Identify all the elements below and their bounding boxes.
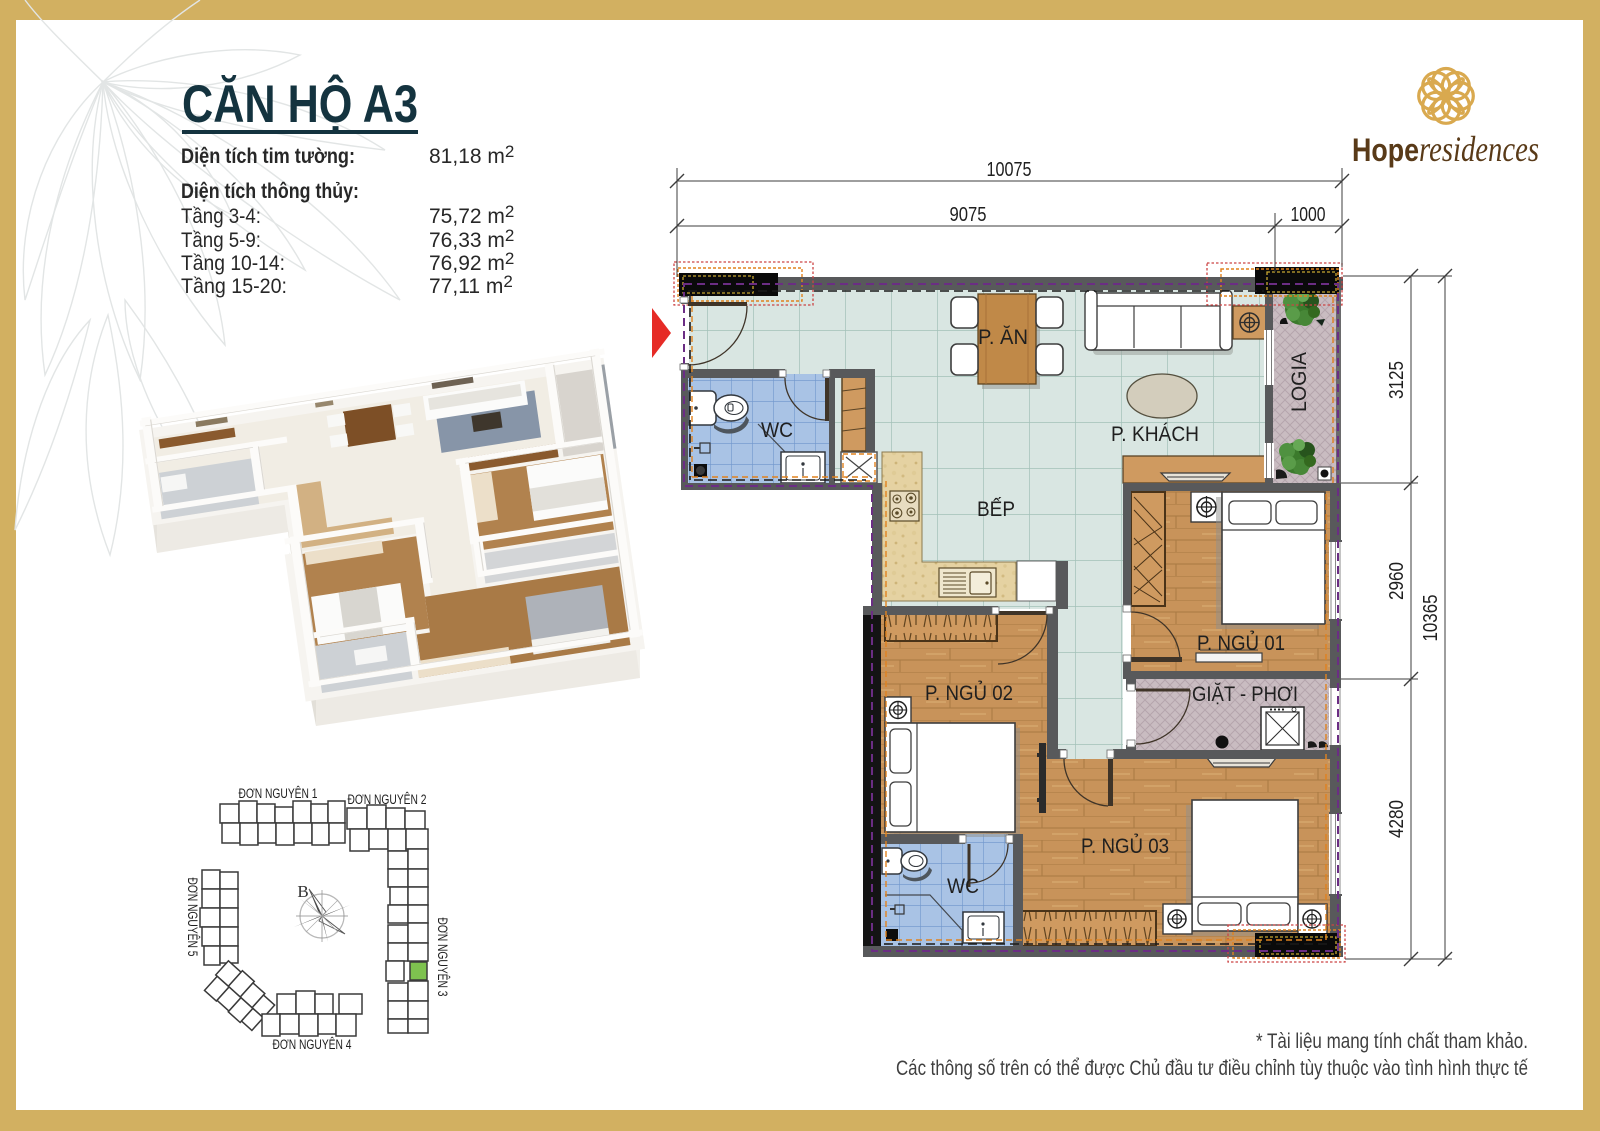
svg-text:76,92 m2: 76,92 m2	[429, 249, 514, 275]
svg-text:Hope: Hope	[1352, 132, 1419, 168]
svg-text:ĐƠN NGUYÊN 4: ĐƠN NGUYÊN 4	[273, 1037, 352, 1052]
svg-text:ĐƠN NGUYÊN 2: ĐƠN NGUYÊN 2	[348, 792, 427, 807]
svg-text:Diện tích tim tường:: Diện tích tim tường:	[181, 145, 355, 168]
svg-text:P. ĂN: P. ĂN	[978, 326, 1028, 349]
svg-text:BẾP: BẾP	[977, 498, 1015, 521]
svg-text:ĐƠN NGUYÊN 5: ĐƠN NGUYÊN 5	[185, 878, 200, 957]
svg-text:9075: 9075	[950, 204, 987, 226]
svg-text:GIẶT - PHƠI: GIẶT - PHƠI	[1192, 683, 1298, 706]
svg-text:residences: residences	[1419, 129, 1539, 169]
svg-text:Tầng 15-20:: Tầng 15-20:	[181, 275, 287, 298]
svg-text:2960: 2960	[1386, 562, 1408, 600]
svg-text:Tầng 5-9:: Tầng 5-9:	[181, 229, 261, 252]
svg-text:75,72 m2: 75,72 m2	[429, 202, 514, 228]
svg-text:P. NGỦ 02: P. NGỦ 02	[925, 681, 1013, 705]
svg-text:CĂN HỘ A3: CĂN HỘ A3	[182, 73, 418, 134]
svg-text:* Tài liệu mang tính chất tham: * Tài liệu mang tính chất tham khảo.	[1256, 1030, 1528, 1053]
svg-text:81,18 m2: 81,18 m2	[429, 142, 514, 168]
svg-text:Tầng 10-14:: Tầng 10-14:	[181, 252, 285, 275]
svg-text:WC: WC	[947, 875, 979, 898]
svg-text:WC: WC	[761, 419, 793, 442]
svg-text:Diện tích thông thủy:: Diện tích thông thủy:	[181, 180, 359, 203]
svg-text:P. NGỦ 01: P. NGỦ 01	[1197, 631, 1285, 655]
svg-text:P. KHÁCH: P. KHÁCH	[1111, 423, 1199, 446]
svg-text:Các thông số trên có thể được: Các thông số trên có thể được Chủ đầu tư…	[896, 1057, 1528, 1080]
svg-text:4280: 4280	[1386, 800, 1408, 838]
svg-text:Tầng 3-4:: Tầng 3-4:	[181, 205, 261, 228]
svg-text:1000: 1000	[1291, 204, 1326, 226]
svg-text:LOGIA: LOGIA	[1288, 352, 1311, 412]
svg-text:ĐƠN NGUYÊN 3: ĐƠN NGUYÊN 3	[435, 918, 450, 997]
svg-text:ĐƠN NGUYÊN 1: ĐƠN NGUYÊN 1	[239, 786, 318, 801]
svg-text:10075: 10075	[987, 159, 1032, 181]
svg-text:B: B	[297, 882, 308, 901]
svg-text:10365: 10365	[1420, 595, 1442, 642]
svg-text:77,11 m2: 77,11 m2	[429, 272, 513, 298]
svg-text:P. NGỦ 03: P. NGỦ 03	[1081, 834, 1169, 858]
svg-text:76,33 m2: 76,33 m2	[429, 226, 514, 252]
svg-text:3125: 3125	[1386, 361, 1408, 399]
